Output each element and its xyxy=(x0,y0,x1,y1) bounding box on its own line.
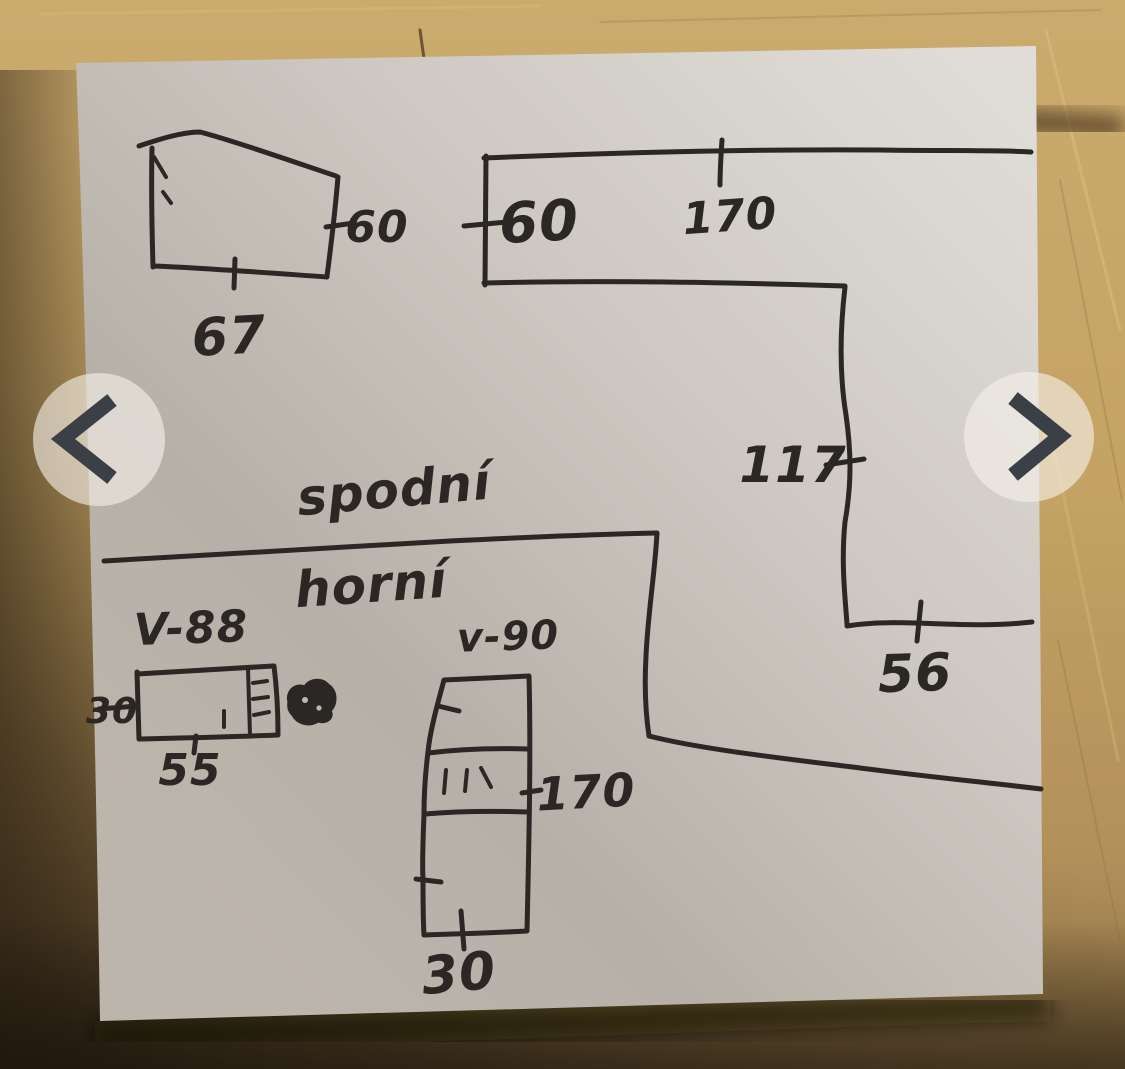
v88-inner-divider xyxy=(248,669,250,735)
dim-top-band-height: 60 xyxy=(497,188,580,257)
label-horni: horní xyxy=(293,550,455,619)
dim-small-shape-height: 60 xyxy=(345,202,408,253)
previous-photo-button[interactable] xyxy=(33,373,165,506)
v90-divider-lower xyxy=(425,811,528,814)
photo-carousel: spodní horní V-88 v-90 60 67 60 170 117 … xyxy=(0,0,1125,1069)
small-shape-bottom-tick xyxy=(234,259,235,288)
v90-left-tick-lower xyxy=(416,879,441,882)
label-v90: v-90 xyxy=(456,612,560,662)
listing-photo: spodní horní V-88 v-90 60 67 60 170 117 … xyxy=(0,0,1125,1069)
chevron-left-icon xyxy=(33,373,165,506)
dim-v88-depth: 30 xyxy=(86,691,138,732)
scribble-gap xyxy=(316,705,321,710)
dim-v90-height: 170 xyxy=(535,762,637,821)
drop-bottom-line xyxy=(847,622,1032,626)
label-v88: V-88 xyxy=(133,601,249,656)
dim-top-band-length: 170 xyxy=(681,188,779,245)
dim-right-drop-width: 56 xyxy=(877,643,953,706)
band-top-tick xyxy=(720,140,722,185)
band-left-edge xyxy=(485,156,486,285)
dim-small-shape-width: 67 xyxy=(190,305,267,369)
dim-right-drop-height: 117 xyxy=(739,436,846,494)
dim-v90-width: 30 xyxy=(419,941,498,1007)
dim-v88-width: 55 xyxy=(158,745,221,796)
scribble-gap xyxy=(302,697,308,703)
v88-scribble-blob xyxy=(288,680,335,724)
next-photo-button[interactable] xyxy=(964,372,1094,502)
chevron-right-icon xyxy=(964,372,1094,502)
